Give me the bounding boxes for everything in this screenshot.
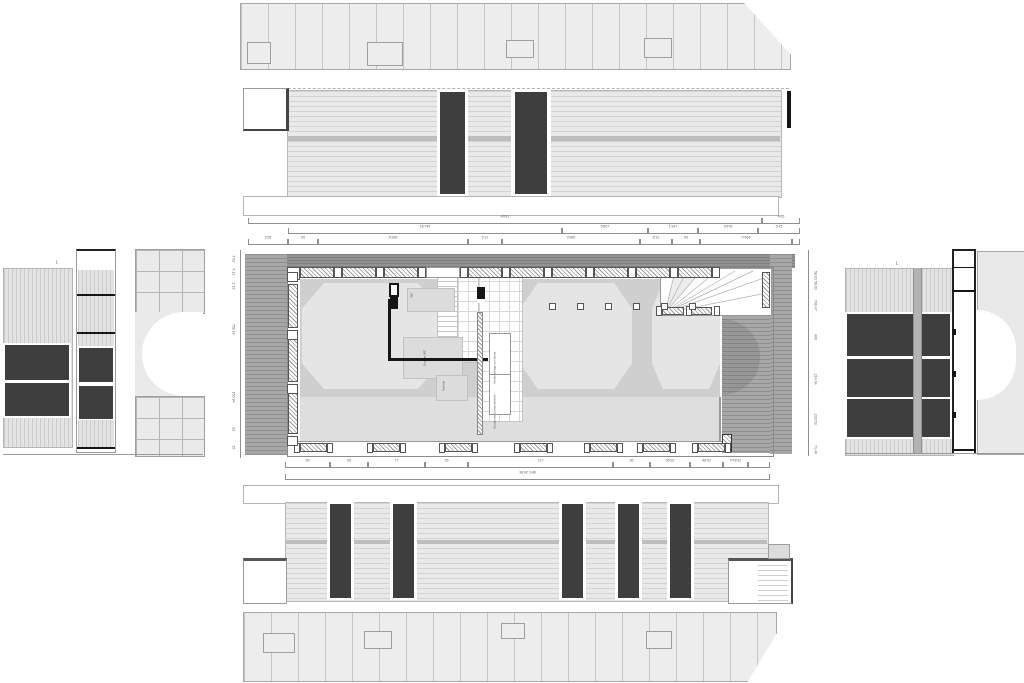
wall-segment	[288, 392, 298, 434]
facade-window	[618, 504, 639, 598]
dimension-segment: 4'65	[762, 218, 800, 224]
dimension-label: 5'12	[475, 236, 494, 240]
wall-post	[628, 267, 636, 278]
right-elevation-mullion	[913, 268, 922, 454]
dimension-label: 4.62	[231, 255, 235, 262]
bay-bar	[77, 294, 115, 296]
wall-segment	[590, 443, 617, 452]
bottom-elevation-stair-box	[728, 558, 793, 604]
dimension-segment: 717	[468, 462, 613, 468]
facade-window	[847, 359, 950, 397]
room-label: Kleiderablage mit Spind	[494, 352, 497, 384]
top-elevation-base-band	[243, 196, 779, 216]
dimension-segment: 77	[368, 462, 425, 468]
dimension-segment: 9'675	[698, 228, 758, 234]
wall-post	[544, 267, 552, 278]
wall-segment	[643, 443, 670, 452]
top-elevation-tick-band	[243, 68, 789, 89]
dimension-segment: 16'745	[288, 228, 562, 234]
facade-window	[393, 504, 414, 598]
dimension-segment	[792, 239, 800, 245]
room-label: Garderobe Schliessfächer	[494, 394, 497, 429]
dimension-segment: 0'964	[700, 239, 792, 245]
bottom-elevation-facade-band	[285, 540, 767, 544]
wall-baseline	[287, 441, 722, 442]
dimension-label: 2'95	[257, 236, 280, 240]
bay-siding	[78, 270, 114, 346]
roof-notch	[646, 631, 672, 649]
wall-post	[502, 267, 510, 278]
left-elevation-entry-bay	[76, 249, 116, 453]
partition-thin	[719, 397, 721, 441]
dimension-label: 95	[434, 459, 459, 463]
wall-segment	[384, 267, 418, 278]
core-wall-h	[388, 358, 488, 361]
stair-lines	[758, 565, 788, 601]
partition-wall	[477, 312, 483, 435]
bay-bar	[77, 447, 115, 449]
column	[605, 303, 612, 310]
bay-line	[952, 267, 976, 268]
dimension-label: 8'285	[349, 236, 438, 240]
dimension-segment: 5'12	[640, 239, 672, 245]
wall-post	[334, 267, 342, 278]
wall-post	[617, 443, 623, 453]
dimension-segment: 95	[285, 462, 330, 468]
wall-segment	[445, 443, 472, 452]
roof-notch	[501, 623, 525, 639]
wall-segment	[636, 267, 670, 278]
wall-post	[327, 443, 333, 453]
facade-window	[670, 504, 691, 598]
wall-segment	[698, 443, 725, 452]
wall-segment	[373, 443, 400, 452]
top-elevation-end-bar	[787, 91, 791, 128]
top-elevation-corner-box	[243, 88, 289, 131]
wall-segment	[342, 267, 376, 278]
plan-left-deck	[245, 254, 287, 455]
plan-top-deck-band	[253, 254, 795, 268]
dimension-label: 95	[295, 459, 321, 463]
top-elevation-roof-plan	[240, 3, 791, 70]
dimension-label: 758.10	[231, 324, 235, 335]
wall-segment	[510, 267, 544, 278]
wall-segment	[678, 267, 712, 278]
column	[633, 303, 640, 310]
dimension-label: 58.01	[813, 281, 817, 290]
wall-segment	[520, 443, 547, 452]
wall-post	[472, 443, 478, 453]
locker-divider	[489, 374, 511, 375]
wall-post	[460, 267, 468, 278]
dimension-segment: 95	[288, 239, 318, 245]
dimension-label: 58.01	[813, 271, 817, 280]
dimension-segment: 5'807	[562, 228, 648, 234]
dimension-label: 95'92	[659, 459, 682, 463]
roof-notch	[247, 42, 271, 64]
door-handle	[952, 329, 956, 335]
dimension-segment: 95	[672, 239, 700, 245]
dimension-line-vertical	[808, 250, 809, 456]
dimension-segment: 95	[330, 462, 368, 468]
wall-post	[586, 267, 594, 278]
dimension-label: 0'985	[530, 236, 612, 240]
dimension-label: 49'81	[351, 215, 658, 219]
dimension-segment: 4'78'92	[723, 462, 748, 468]
dimension-label: 1'947	[659, 225, 688, 229]
door-element	[390, 297, 398, 309]
dimension-segment: 95'92	[650, 462, 690, 468]
wall-post	[547, 443, 553, 453]
bottom-elevation-corner-box	[243, 558, 287, 604]
facade-window	[847, 314, 950, 356]
door-handle	[952, 412, 956, 418]
left-elevation-glass-grid	[135, 249, 205, 314]
wall-post	[400, 443, 406, 453]
bay-line	[952, 449, 976, 451]
wall-post	[725, 443, 731, 453]
roof-notch	[367, 42, 403, 66]
roof-notch	[364, 631, 392, 649]
bottom-elevation-roof-plan	[243, 612, 777, 682]
dimension-segment: 38'42 1/46	[285, 474, 770, 480]
bay-siding	[78, 420, 114, 449]
dimension-segment: 95	[425, 462, 468, 468]
section-marker: 1	[896, 262, 898, 266]
dimension-total-label: 38'42 1/46	[383, 471, 673, 475]
bottom-elevation-facade	[285, 502, 769, 602]
bay-line	[952, 290, 976, 292]
dimension-label: 95	[338, 459, 360, 463]
facade-window	[5, 383, 69, 416]
bottom-elevation-tab	[768, 544, 790, 559]
facade-window	[515, 92, 547, 194]
dimension-label: 214.04	[813, 374, 817, 385]
wall-segment	[468, 267, 502, 278]
dimension-label: 5'12	[647, 236, 665, 240]
facade-window	[79, 386, 113, 419]
wall-segment	[594, 267, 628, 278]
fixture	[436, 375, 468, 401]
dimension-segment: 49'81	[248, 218, 762, 224]
dimension-label: 77	[380, 459, 413, 463]
column	[661, 303, 668, 310]
dimension-label: 0'964	[719, 236, 773, 240]
facade-window	[5, 345, 69, 380]
dimension-label: 95	[295, 236, 312, 240]
wall-segment	[552, 267, 586, 278]
dimension-label: 48'92	[697, 459, 716, 463]
dimension-label: 16'745	[343, 225, 506, 229]
wall-post	[287, 330, 298, 340]
dimension-label: 95	[678, 236, 694, 240]
wall-post	[418, 267, 426, 278]
facade-window	[330, 504, 351, 598]
facade-window	[847, 399, 950, 437]
room-label: Technik	[443, 381, 446, 391]
column	[577, 303, 584, 310]
column	[689, 303, 696, 310]
dimension-segment: 48'92	[690, 462, 723, 468]
dimension-segment: 0'985	[502, 239, 640, 245]
dimension-segment: 95	[613, 462, 650, 468]
wall-segment	[426, 267, 460, 278]
left-elevation-glass-grid	[135, 396, 205, 457]
dimension-segment: 2'95	[248, 239, 288, 245]
wall-segment	[300, 267, 334, 278]
door-element	[389, 283, 399, 297]
roof-notch	[644, 38, 672, 58]
wall-segment	[288, 284, 298, 328]
bay-bar	[77, 332, 115, 334]
dimension-label: 2.13	[231, 282, 235, 289]
wall-segment	[762, 272, 770, 308]
dimension-label: 4.12	[231, 268, 235, 275]
wall-segment	[288, 338, 298, 382]
column	[549, 303, 556, 310]
dimension-label: 4'65	[770, 215, 792, 219]
dimension-label: 15	[231, 445, 235, 449]
wall-post	[714, 306, 720, 316]
dimension-label: 92	[231, 427, 235, 431]
dimension-label: 400	[813, 334, 817, 340]
dimension-segment	[748, 462, 770, 468]
dimension-label: 4'78'92	[729, 459, 743, 463]
dimension-segment: 1'947	[648, 228, 698, 234]
dimension-label: 708.47	[813, 300, 817, 311]
facade-window	[79, 348, 113, 382]
dimension-label: 95	[621, 459, 642, 463]
right-elevation-entry-bay	[952, 249, 976, 453]
dimension-label: 233.53	[813, 414, 817, 425]
fixture	[407, 288, 455, 312]
dimension-segment: 8'285	[318, 239, 468, 245]
wall-post	[376, 267, 384, 278]
dimension-label: 5'75	[767, 225, 791, 229]
dimension-label: 717	[498, 459, 584, 463]
roof-notch	[506, 40, 534, 58]
door-handle	[952, 371, 956, 377]
baseline	[3, 454, 203, 455]
dimension-label: 5'807	[580, 225, 630, 229]
wall-post	[287, 272, 298, 282]
wall-post	[670, 267, 678, 278]
door-element	[477, 287, 485, 303]
dimension-label: 150.84	[231, 392, 235, 403]
roof-notch	[263, 633, 295, 653]
architectural-drawing-sheet: WCDusche WCTechnikKleiderablage mit Spin…	[0, 0, 1024, 683]
room-label: WC	[411, 293, 414, 298]
dimension-segment: 5'12	[468, 239, 502, 245]
facade-window	[562, 504, 583, 598]
wall-post	[712, 267, 720, 278]
section-marker: 1	[56, 261, 58, 265]
wall-post	[670, 443, 676, 453]
dimension-label: 71.40	[813, 445, 817, 454]
baseline	[845, 453, 1024, 454]
dimension-line-vertical	[240, 250, 241, 458]
dimension-label: 9'675	[711, 225, 746, 229]
floor-octagon	[520, 283, 632, 389]
wall-segment	[300, 443, 327, 452]
wall-post	[287, 384, 298, 394]
wall-post	[287, 436, 298, 446]
facade-window	[440, 92, 465, 194]
dimension-segment: 5'75	[758, 228, 800, 234]
